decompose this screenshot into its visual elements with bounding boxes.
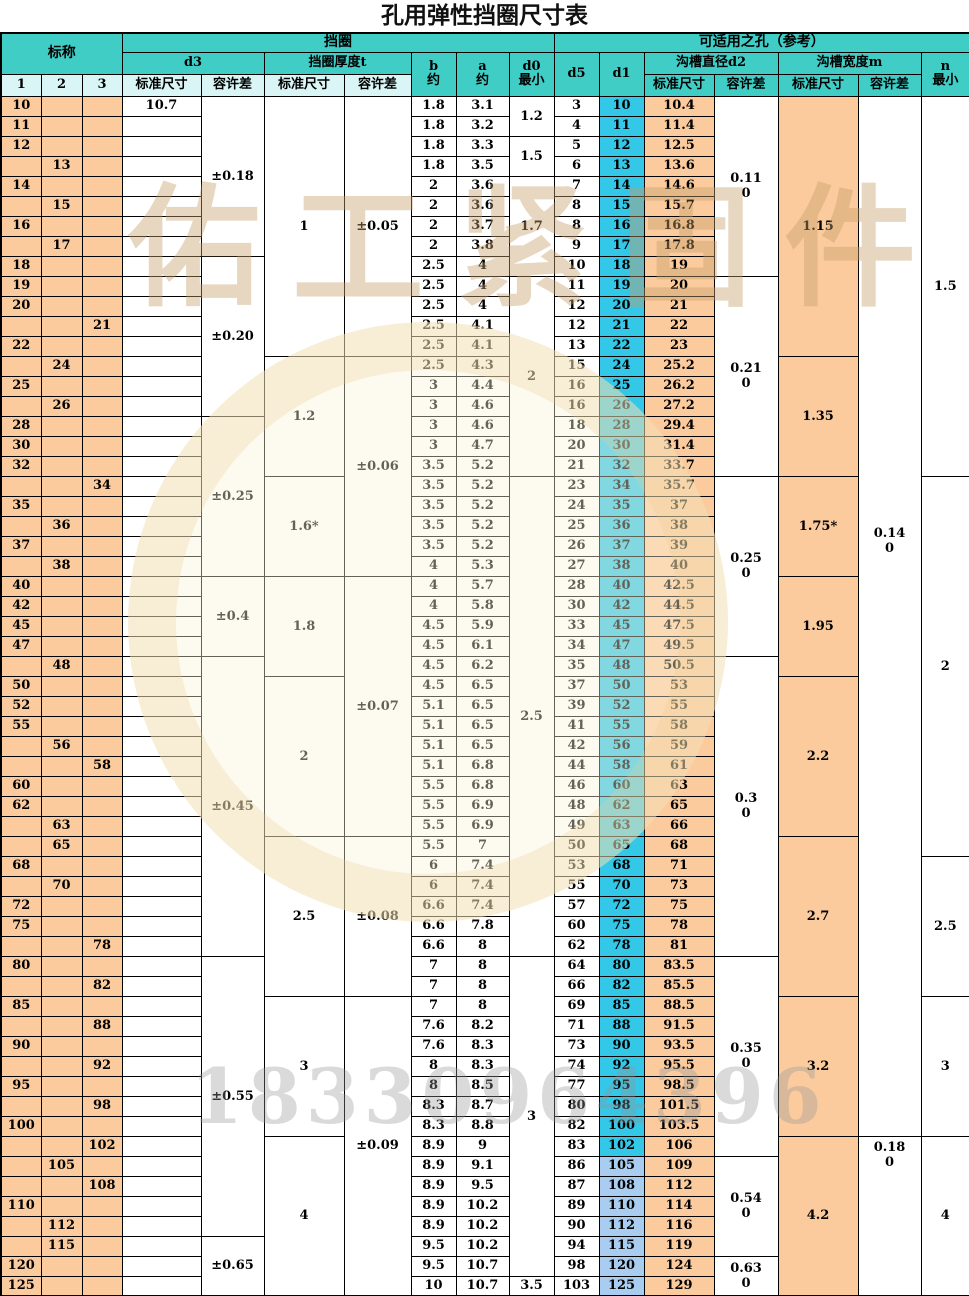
b-approx-cell-56: 5.1: [411, 736, 456, 756]
d1-cell-12: 12: [599, 136, 644, 156]
b-approx-cell-11: 1.8: [411, 116, 456, 136]
nominal-col1-cell-62: 62: [1, 796, 41, 816]
d3-standard-cell-26: [122, 396, 201, 416]
nominal-col1-cell-68: 68: [1, 856, 41, 876]
d3-standard-cell-110: [122, 1196, 201, 1216]
nominal-col2-cell-92: [41, 1056, 82, 1076]
d2-standard-cell-80: 83.5: [644, 956, 714, 976]
header-groove-dia: 沟槽直径d2: [644, 52, 778, 74]
nominal-col3-cell-26: [82, 396, 122, 416]
nominal-col3-cell-95: [82, 1076, 122, 1096]
a-approx-cell-17: 3.8: [456, 236, 509, 256]
b-approx-cell-102: 8.9: [411, 1136, 456, 1156]
a-approx-cell-25: 4.4: [456, 376, 509, 396]
nominal-col1-cell-15: [1, 196, 41, 216]
d5-cell-60: 46: [554, 776, 599, 796]
d0-min-cell-125: 3.5: [509, 1276, 554, 1296]
header-d0-min-label: 最小: [510, 74, 554, 88]
d5-cell-20: 12: [554, 296, 599, 316]
nominal-col2-cell-32: [41, 456, 82, 476]
d5-cell-108: 87: [554, 1176, 599, 1196]
header-d3: d3: [122, 52, 264, 74]
nominal-col3-cell-60: [82, 776, 122, 796]
nominal-col2-cell-108: [41, 1176, 82, 1196]
nominal-col1-cell-26: [1, 396, 41, 416]
nominal-col1-cell-108: [1, 1176, 41, 1196]
d1-cell-110: 110: [599, 1196, 644, 1216]
nominal-col1-cell-125: 125: [1, 1276, 41, 1296]
d1-cell-17: 17: [599, 236, 644, 256]
a-approx-cell-11: 3.2: [456, 116, 509, 136]
b-approx-cell-110: 8.9: [411, 1196, 456, 1216]
nominal-col1-cell-102: [1, 1136, 41, 1156]
d3-standard-cell-19: [122, 276, 201, 296]
b-approx-cell-20: 2.5: [411, 296, 456, 316]
nominal-col2-cell-82: [41, 976, 82, 996]
d3-tolerance-cell-10: ±0.18: [201, 96, 264, 256]
d2-standard-cell-108: 112: [644, 1176, 714, 1196]
nominal-col2-cell-56: 56: [41, 736, 82, 756]
d2-standard-cell-52: 55: [644, 696, 714, 716]
d5-cell-16: 8: [554, 216, 599, 236]
nominal-col1-cell-42: 42: [1, 596, 41, 616]
d1-cell-85: 85: [599, 996, 644, 1016]
nominal-col1-cell-60: 60: [1, 776, 41, 796]
d1-cell-112: 112: [599, 1216, 644, 1236]
d5-cell-56: 42: [554, 736, 599, 756]
nominal-col2-cell-30: [41, 436, 82, 456]
a-approx-cell-58: 6.8: [456, 756, 509, 776]
nominal-col1-cell-65: [1, 836, 41, 856]
d3-standard-cell-30: [122, 436, 201, 456]
d5-cell-63: 49: [554, 816, 599, 836]
d1-cell-62: 62: [599, 796, 644, 816]
d2-standard-cell-85: 88.5: [644, 996, 714, 1016]
a-approx-cell-78: 8: [456, 936, 509, 956]
d5-cell-17: 9: [554, 236, 599, 256]
table-row-50: 5024.56.53750532.2: [1, 676, 969, 696]
n-min-cell-68: 2.5: [921, 856, 969, 996]
d2-standard-cell-34: 35.7: [644, 476, 714, 496]
nominal-col1-cell-80: 80: [1, 956, 41, 976]
d3-standard-cell-38: [122, 556, 201, 576]
d3-standard-cell-45: [122, 616, 201, 636]
nominal-col1-cell-85: 85: [1, 996, 41, 1016]
d1-cell-38: 38: [599, 556, 644, 576]
nominal-col2-cell-80: [41, 956, 82, 976]
b-approx-cell-16: 2: [411, 216, 456, 236]
nominal-col3-cell-48: [82, 656, 122, 676]
d2-tolerance-cell-80: 0.350: [714, 956, 778, 1156]
d1-cell-95: 95: [599, 1076, 644, 1096]
nominal-col3-cell-28: [82, 416, 122, 436]
b-approx-cell-52: 5.1: [411, 696, 456, 716]
nominal-col1-cell-105: [1, 1156, 41, 1176]
m-standard-cell-34: 1.75*: [778, 476, 858, 576]
nominal-col2-cell-42: [41, 596, 82, 616]
nominal-col2-cell-105: 105: [41, 1156, 82, 1176]
d1-cell-11: 11: [599, 116, 644, 136]
d5-cell-72: 57: [554, 896, 599, 916]
b-approx-cell-10: 1.8: [411, 96, 456, 116]
thickness-tolerance-cell-24: ±0.06: [344, 356, 411, 576]
nominal-col2-cell-35: [41, 496, 82, 516]
nominal-col3-cell-92: 92: [82, 1056, 122, 1076]
d2-standard-cell-50: 53: [644, 676, 714, 696]
d2-standard-cell-112: 116: [644, 1216, 714, 1236]
nominal-col3-cell-25: [82, 376, 122, 396]
b-approx-cell-68: 6: [411, 856, 456, 876]
nominal-col1-cell-25: 25: [1, 376, 41, 396]
nominal-col1-cell-92: [1, 1056, 41, 1076]
nominal-col3-cell-36: [82, 516, 122, 536]
d3-standard-cell-63: [122, 816, 201, 836]
d5-cell-13: 6: [554, 156, 599, 176]
header-groove-width: 沟槽宽度m: [778, 52, 921, 74]
d5-cell-15: 8: [554, 196, 599, 216]
header-d0-label: d0: [510, 60, 554, 74]
d5-cell-30: 20: [554, 436, 599, 456]
table-body: 1010.7±0.181±0.051.83.11.231010.40.1101.…: [1, 96, 969, 1296]
d2-standard-cell-88: 91.5: [644, 1016, 714, 1036]
nominal-col3-cell-105: [82, 1156, 122, 1176]
size-table: 标称 挡圈 可适用之孔（参考） d3 挡圈厚度t b 约 a 约 d0 最小: [0, 32, 969, 1296]
d0-min-cell-14: 1.7: [509, 176, 554, 276]
m-standard-cell-85: 3.2: [778, 996, 858, 1136]
d5-cell-88: 71: [554, 1016, 599, 1036]
nominal-col1-cell-52: 52: [1, 696, 41, 716]
nominal-col3-cell-65: [82, 836, 122, 856]
b-approx-cell-85: 7: [411, 996, 456, 1016]
d3-standard-cell-16: [122, 216, 201, 236]
nominal-col1-cell-17: [1, 236, 41, 256]
d3-tolerance-cell-18: ±0.20: [201, 256, 264, 416]
d5-cell-112: 90: [554, 1216, 599, 1236]
thickness-standard-cell-102: 4: [264, 1136, 344, 1296]
nominal-col3-cell-55: [82, 716, 122, 736]
nominal-col1-cell-50: 50: [1, 676, 41, 696]
nominal-col2-cell-120: [41, 1256, 82, 1276]
a-approx-cell-72: 7.4: [456, 896, 509, 916]
d5-cell-36: 25: [554, 516, 599, 536]
d3-standard-cell-42: [122, 596, 201, 616]
nominal-col1-cell-95: 95: [1, 1076, 41, 1096]
table-row-10: 1010.7±0.181±0.051.83.11.231010.40.1101.…: [1, 96, 969, 116]
d3-standard-cell-55: [122, 716, 201, 736]
d2-standard-cell-105: 109: [644, 1156, 714, 1176]
nominal-col1-cell-30: 30: [1, 436, 41, 456]
nominal-col3-cell-40: [82, 576, 122, 596]
nominal-col3-cell-82: 82: [82, 976, 122, 996]
d2-tolerance-cell-48: 0.30: [714, 656, 778, 956]
d1-cell-24: 24: [599, 356, 644, 376]
a-approx-cell-18: 4: [456, 256, 509, 276]
nominal-col1-cell-47: 47: [1, 636, 41, 656]
d5-cell-11: 4: [554, 116, 599, 136]
nominal-col2-cell-17: 17: [41, 236, 82, 256]
b-approx-cell-105: 8.9: [411, 1156, 456, 1176]
d1-cell-63: 63: [599, 816, 644, 836]
d1-cell-56: 56: [599, 736, 644, 756]
d2-standard-cell-12: 12.5: [644, 136, 714, 156]
b-approx-cell-55: 5.1: [411, 716, 456, 736]
d5-cell-26: 16: [554, 396, 599, 416]
nominal-col3-cell-88: 88: [82, 1016, 122, 1036]
d5-cell-24: 15: [554, 356, 599, 376]
d1-cell-125: 125: [599, 1276, 644, 1296]
b-approx-cell-100: 8.3: [411, 1116, 456, 1136]
d5-cell-12: 5: [554, 136, 599, 156]
d3-tolerance-cell-28: ±0.25: [201, 416, 264, 576]
a-approx-cell-24: 4.3: [456, 356, 509, 376]
b-approx-cell-25: 3: [411, 376, 456, 396]
d3-standard-cell-58: [122, 756, 201, 776]
b-approx-cell-80: 7: [411, 956, 456, 976]
nominal-col3-cell-18: [82, 256, 122, 276]
page-title: 孔用弹性挡圈尺寸表: [0, 0, 969, 32]
d1-cell-115: 115: [599, 1236, 644, 1256]
nominal-col2-cell-68: [41, 856, 82, 876]
nominal-col3-cell-108: 108: [82, 1176, 122, 1196]
d5-cell-120: 98: [554, 1256, 599, 1276]
header-ring-group: 挡圈: [122, 33, 554, 52]
a-approx-cell-10: 3.1: [456, 96, 509, 116]
b-approx-cell-90: 7.6: [411, 1036, 456, 1056]
thickness-standard-cell-65: 2.5: [264, 836, 344, 996]
header-b-approx-label: 约: [412, 74, 456, 88]
nominal-col2-cell-40: [41, 576, 82, 596]
d2-standard-cell-28: 29.4: [644, 416, 714, 436]
b-approx-cell-75: 6.6: [411, 916, 456, 936]
nominal-col1-cell-32: 32: [1, 456, 41, 476]
d5-cell-90: 73: [554, 1036, 599, 1056]
nominal-col3-cell-34: 34: [82, 476, 122, 496]
d5-cell-38: 27: [554, 556, 599, 576]
d3-standard-cell-25: [122, 376, 201, 396]
d5-cell-52: 39: [554, 696, 599, 716]
nominal-col3-cell-78: 78: [82, 936, 122, 956]
d1-cell-48: 48: [599, 656, 644, 676]
d2-standard-cell-58: 61: [644, 756, 714, 776]
d0-min-cell-80: 3: [509, 956, 554, 1276]
d5-cell-105: 86: [554, 1156, 599, 1176]
b-approx-cell-32: 3.5: [411, 456, 456, 476]
b-approx-cell-36: 3.5: [411, 516, 456, 536]
d2-standard-cell-78: 81: [644, 936, 714, 956]
d5-cell-28: 18: [554, 416, 599, 436]
a-approx-cell-35: 5.2: [456, 496, 509, 516]
nominal-col2-cell-58: [41, 756, 82, 776]
nominal-col2-cell-102: [41, 1136, 82, 1156]
b-approx-cell-37: 3.5: [411, 536, 456, 556]
d5-cell-125: 103: [554, 1276, 599, 1296]
a-approx-cell-34: 5.2: [456, 476, 509, 496]
b-approx-cell-40: 4: [411, 576, 456, 596]
nominal-col2-cell-78: [41, 936, 82, 956]
nominal-col1-cell-35: 35: [1, 496, 41, 516]
a-approx-cell-82: 8: [456, 976, 509, 996]
nominal-col1-cell-90: 90: [1, 1036, 41, 1056]
b-approx-cell-12: 1.8: [411, 136, 456, 156]
d1-cell-28: 28: [599, 416, 644, 436]
nominal-col2-cell-90: [41, 1036, 82, 1056]
table-row-40: 40±0.41.8±0.0745.7284042.51.95: [1, 576, 969, 596]
nominal-col2-cell-10: [41, 96, 82, 116]
d1-cell-92: 92: [599, 1056, 644, 1076]
a-approx-cell-30: 4.7: [456, 436, 509, 456]
header-n-label: n: [922, 60, 969, 74]
d2-tolerance-cell-34: 0.250: [714, 476, 778, 656]
d3-standard-cell-34: [122, 476, 201, 496]
d2-standard-cell-82: 85.5: [644, 976, 714, 996]
d2-standard-cell-35: 37: [644, 496, 714, 516]
d2-standard-cell-37: 39: [644, 536, 714, 556]
a-approx-cell-56: 6.5: [456, 736, 509, 756]
header-hole-group: 可适用之孔（参考）: [554, 33, 969, 52]
d2-standard-cell-110: 114: [644, 1196, 714, 1216]
d0-min-cell-12: 1.5: [509, 136, 554, 176]
d5-cell-10: 3: [554, 96, 599, 116]
a-approx-cell-88: 8.2: [456, 1016, 509, 1036]
d5-cell-48: 35: [554, 656, 599, 676]
d3-standard-cell-15: [122, 196, 201, 216]
a-approx-cell-37: 5.2: [456, 536, 509, 556]
b-approx-cell-50: 4.5: [411, 676, 456, 696]
d2-standard-cell-26: 27.2: [644, 396, 714, 416]
m-standard-cell-50: 2.2: [778, 676, 858, 836]
d3-standard-cell-60: [122, 776, 201, 796]
nominal-col2-cell-62: [41, 796, 82, 816]
d1-cell-82: 82: [599, 976, 644, 996]
nominal-col2-cell-22: [41, 336, 82, 356]
d1-cell-19: 19: [599, 276, 644, 296]
thickness-standard-cell-10: 1: [264, 96, 344, 356]
a-approx-cell-19: 4: [456, 276, 509, 296]
d2-standard-cell-15: 15.7: [644, 196, 714, 216]
d3-standard-cell-100: [122, 1116, 201, 1136]
b-approx-cell-17: 2: [411, 236, 456, 256]
table-row-34: 341.6*3.55.22.5233435.70.2501.75*2: [1, 476, 969, 496]
d1-cell-16: 16: [599, 216, 644, 236]
a-approx-cell-36: 5.2: [456, 516, 509, 536]
nominal-col1-cell-38: [1, 556, 41, 576]
d2-standard-cell-40: 42.5: [644, 576, 714, 596]
nominal-col3-cell-62: [82, 796, 122, 816]
a-approx-cell-60: 6.8: [456, 776, 509, 796]
b-approx-cell-115: 9.5: [411, 1236, 456, 1256]
d3-standard-cell-82: [122, 976, 201, 996]
a-approx-cell-40: 5.7: [456, 576, 509, 596]
b-approx-cell-95: 8: [411, 1076, 456, 1096]
d3-standard-cell-37: [122, 536, 201, 556]
nominal-col1-cell-21: [1, 316, 41, 336]
b-approx-cell-15: 2: [411, 196, 456, 216]
d2-standard-cell-75: 78: [644, 916, 714, 936]
nominal-col1-cell-88: [1, 1016, 41, 1036]
d3-standard-cell-75: [122, 916, 201, 936]
nominal-col3-cell-90: [82, 1036, 122, 1056]
nominal-col1-cell-45: 45: [1, 616, 41, 636]
d2-standard-cell-19: 20: [644, 276, 714, 296]
d5-cell-70: 55: [554, 876, 599, 896]
nominal-col3-cell-16: [82, 216, 122, 236]
d3-standard-cell-36: [122, 516, 201, 536]
nominal-col3-cell-52: [82, 696, 122, 716]
b-approx-cell-22: 2.5: [411, 336, 456, 356]
d5-cell-65: 50: [554, 836, 599, 856]
d3-standard-cell-35: [122, 496, 201, 516]
header-a-approx: a 约: [456, 52, 509, 96]
a-approx-cell-15: 3.6: [456, 196, 509, 216]
nominal-col2-cell-70: 70: [41, 876, 82, 896]
d3-standard-cell-125: [122, 1276, 201, 1296]
nominal-col2-cell-52: [41, 696, 82, 716]
d3-standard-cell-70: [122, 876, 201, 896]
a-approx-cell-68: 7.4: [456, 856, 509, 876]
b-approx-cell-125: 10: [411, 1276, 456, 1296]
nominal-col3-cell-100: [82, 1116, 122, 1136]
d3-standard-cell-120: [122, 1256, 201, 1276]
n-min-cell-85: 3: [921, 996, 969, 1136]
d3-standard-cell-95: [122, 1076, 201, 1096]
nominal-col1-cell-13: [1, 156, 41, 176]
d5-cell-62: 48: [554, 796, 599, 816]
d2-standard-cell-120: 124: [644, 1256, 714, 1276]
d1-cell-58: 58: [599, 756, 644, 776]
b-approx-cell-45: 4.5: [411, 616, 456, 636]
d5-cell-100: 82: [554, 1116, 599, 1136]
a-approx-cell-100: 8.8: [456, 1116, 509, 1136]
a-approx-cell-16: 3.7: [456, 216, 509, 236]
d1-cell-40: 40: [599, 576, 644, 596]
nominal-col2-cell-18: [41, 256, 82, 276]
d1-cell-25: 25: [599, 376, 644, 396]
header-a-label: a: [457, 60, 509, 74]
header-t-std: 标准尺寸: [264, 74, 344, 96]
d2-standard-cell-100: 103.5: [644, 1116, 714, 1136]
d3-standard-cell-56: [122, 736, 201, 756]
d2-standard-cell-68: 71: [644, 856, 714, 876]
nominal-col2-cell-12: [41, 136, 82, 156]
d5-cell-50: 37: [554, 676, 599, 696]
d3-standard-cell-92: [122, 1056, 201, 1076]
header-d3-tol: 容许差: [201, 74, 264, 96]
d1-cell-36: 36: [599, 516, 644, 536]
d1-cell-22: 22: [599, 336, 644, 356]
nominal-col3-cell-21: 21: [82, 316, 122, 336]
d1-cell-45: 45: [599, 616, 644, 636]
d5-cell-21: 12: [554, 316, 599, 336]
nominal-col3-cell-102: 102: [82, 1136, 122, 1156]
nominal-col2-cell-25: [41, 376, 82, 396]
d3-standard-cell-98: [122, 1096, 201, 1116]
nominal-col3-cell-10: [82, 96, 122, 116]
header-d0-min: d0 最小: [509, 52, 554, 96]
d2-standard-cell-24: 25.2: [644, 356, 714, 376]
d5-cell-42: 30: [554, 596, 599, 616]
d5-cell-35: 24: [554, 496, 599, 516]
d3-standard-cell-90: [122, 1036, 201, 1056]
nominal-col3-cell-58: 58: [82, 756, 122, 776]
b-approx-cell-28: 3: [411, 416, 456, 436]
a-approx-cell-105: 9.1: [456, 1156, 509, 1176]
d1-cell-35: 35: [599, 496, 644, 516]
d2-standard-cell-102: 106: [644, 1136, 714, 1156]
nominal-col1-cell-12: 12: [1, 136, 41, 156]
b-approx-cell-88: 7.6: [411, 1016, 456, 1036]
d2-standard-cell-95: 98.5: [644, 1076, 714, 1096]
thickness-standard-cell-40: 1.8: [264, 576, 344, 676]
